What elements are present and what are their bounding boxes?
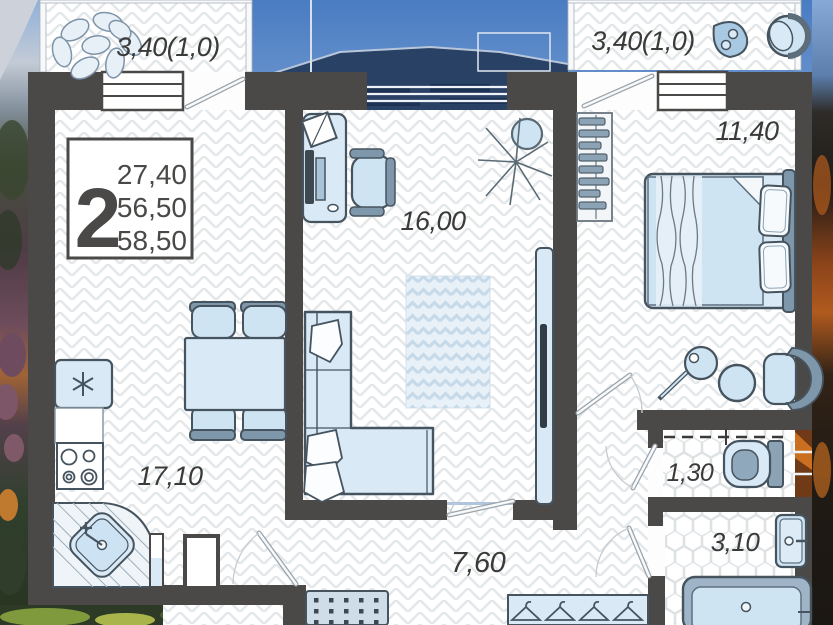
living-area-value: 27,40 — [117, 159, 187, 190]
wardrobe-icon — [577, 113, 612, 221]
bed-icon — [645, 170, 795, 312]
kitchen-door-leaf — [185, 536, 218, 588]
desk-icon — [302, 112, 346, 222]
balcony-table-icon — [714, 22, 748, 57]
kitchen-duct-inner — [151, 558, 162, 586]
dining-table-icon — [185, 302, 286, 440]
info-box: 2 27,40 56,50 58,50 — [68, 139, 192, 265]
stove-icon — [57, 443, 103, 489]
room-count: 2 — [75, 171, 120, 265]
total-area-value: 58,50 — [117, 225, 187, 256]
floor-plan-svg: 2 27,40 56,50 58,50 3,40(1,0) 3,40(1,0) … — [0, 0, 833, 625]
floor-plan-canvas: 2 27,40 56,50 58,50 3,40(1,0) 3,40(1,0) … — [0, 0, 833, 625]
hallway-label: 7,60 — [451, 547, 506, 579]
balcony-left-label: 3,40(1,0) — [116, 32, 220, 62]
doormat-icon — [306, 591, 388, 625]
fridge-icon — [55, 360, 112, 408]
monitor-icon — [305, 150, 314, 204]
toilet-icon — [724, 441, 783, 487]
photo-wc-window-view — [795, 430, 812, 497]
stool-icon — [719, 365, 755, 401]
tv-cabinet-icon — [536, 248, 553, 504]
bedroom-chair-icon — [764, 348, 823, 410]
photo-right-strip — [812, 0, 833, 625]
bathtub-icon — [683, 577, 811, 625]
bedroom-window — [658, 72, 727, 110]
living-room-label: 16,00 — [400, 206, 466, 236]
rug-icon — [406, 276, 490, 408]
mouse-icon — [328, 205, 338, 212]
pillow-icon — [759, 185, 792, 237]
bedroom-label: 11,40 — [715, 116, 779, 146]
apartment-area-value: 56,50 — [117, 192, 187, 223]
tv-icon — [540, 324, 547, 428]
wc-label: 1,30 — [667, 459, 714, 487]
hanger-wardrobe-icon — [508, 595, 648, 625]
office-chair-icon — [350, 149, 395, 216]
pillow-icon — [759, 242, 791, 293]
kitchen-label: 17,10 — [137, 461, 203, 491]
kitchen-counter — [55, 408, 103, 443]
bathroom-label: 3,10 — [711, 527, 761, 557]
balcony-right-label: 3,40(1,0) — [591, 26, 695, 56]
bath-sink-icon — [776, 515, 808, 567]
